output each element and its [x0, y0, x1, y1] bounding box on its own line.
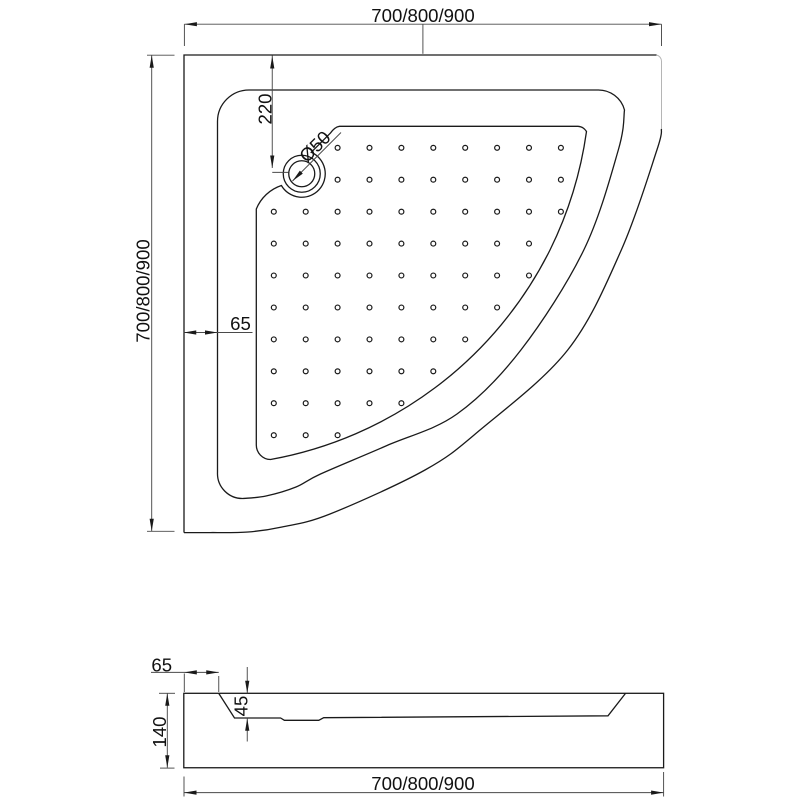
svg-text:65: 65: [230, 313, 251, 334]
svg-text:140: 140: [149, 716, 170, 747]
svg-text:700/800/900: 700/800/900: [371, 5, 474, 26]
svg-text:65: 65: [151, 654, 172, 675]
svg-text:700/800/900: 700/800/900: [132, 239, 153, 342]
svg-text:45: 45: [230, 696, 251, 717]
svg-text:700/800/900: 700/800/900: [371, 773, 474, 794]
svg-text:220: 220: [254, 93, 275, 124]
